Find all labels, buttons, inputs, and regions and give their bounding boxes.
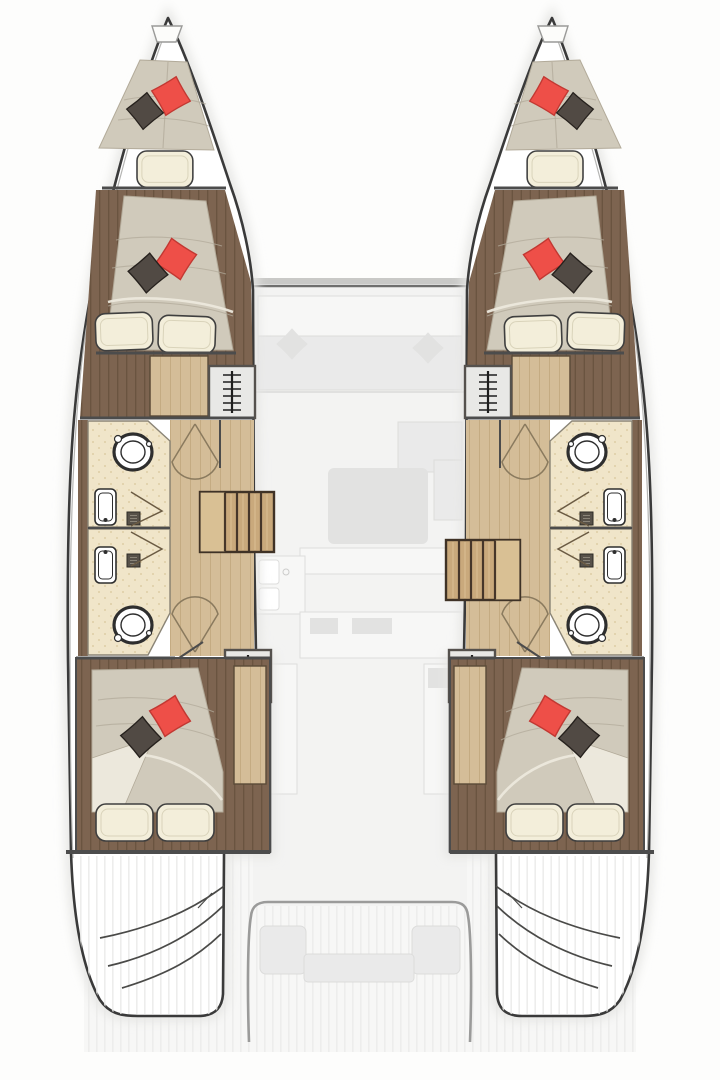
cream-pillow: [157, 804, 214, 841]
saloon-table-ghost: [328, 468, 428, 544]
cockpit-bench-ghost: [260, 926, 306, 974]
saloon-front-wall: [250, 278, 470, 284]
sink: [95, 489, 116, 525]
starboard-saloon-stairs: [446, 540, 520, 600]
toilet: [114, 434, 152, 470]
cream-pillow: [96, 804, 153, 841]
cream-pillow: [158, 315, 216, 354]
forward-companionway-ladder-icon: [209, 366, 255, 418]
sink: [95, 547, 116, 583]
cream-pillow: [137, 151, 193, 187]
cream-pillow: [95, 312, 153, 351]
hull-side-trim: [78, 420, 88, 656]
cabin-step: [150, 356, 208, 416]
cockpit-bench-ghost: [412, 926, 460, 974]
floor-plan-svg: Catamaran interior layout floor plan: [0, 0, 720, 1080]
transom-steps: [76, 856, 226, 1014]
bow-locker: [152, 26, 182, 42]
galley-ghost: [255, 556, 305, 614]
cockpit-table-ghost: [304, 954, 414, 982]
wardrobe: [234, 666, 266, 784]
aft-cabin: [66, 642, 270, 852]
catamaran-floor-plan: Catamaran interior layout floor plan: [0, 0, 720, 1080]
port-saloon-stairs: [200, 492, 274, 552]
toilet: [114, 607, 152, 643]
